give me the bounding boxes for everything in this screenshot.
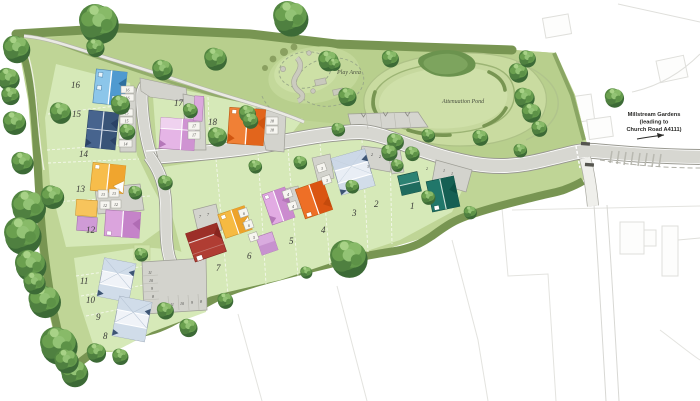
svg-text:8: 8 <box>152 294 154 299</box>
svg-text:2: 2 <box>374 199 379 209</box>
svg-text:13: 13 <box>112 191 116 196</box>
svg-text:1: 1 <box>451 171 453 176</box>
svg-text:Play Area: Play Area <box>336 70 361 76</box>
svg-text:3: 3 <box>367 164 369 169</box>
svg-text:17: 17 <box>174 98 184 108</box>
svg-text:14: 14 <box>124 142 128 147</box>
svg-text:Attenuation Pond: Attenuation Pond <box>441 99 485 105</box>
svg-text:3: 3 <box>321 166 323 171</box>
svg-text:9: 9 <box>191 300 193 305</box>
svg-text:9: 9 <box>151 286 153 291</box>
svg-text:18: 18 <box>270 128 274 133</box>
svg-text:2: 2 <box>379 154 381 159</box>
svg-text:13: 13 <box>76 184 86 194</box>
svg-text:2: 2 <box>371 152 373 157</box>
svg-text:15: 15 <box>125 119 129 124</box>
svg-text:6: 6 <box>248 223 250 228</box>
svg-text:10: 10 <box>149 278 153 283</box>
svg-text:3: 3 <box>351 208 357 218</box>
svg-text:9: 9 <box>96 312 101 322</box>
svg-text:4: 4 <box>287 192 289 197</box>
svg-text:Church Road A4111): Church Road A4111) <box>626 127 681 133</box>
svg-text:12: 12 <box>114 202 118 207</box>
svg-text:10: 10 <box>86 295 96 305</box>
svg-text:5: 5 <box>253 235 255 240</box>
svg-text:14: 14 <box>79 149 89 159</box>
svg-text:16: 16 <box>126 88 130 93</box>
svg-text:11: 11 <box>148 270 152 275</box>
svg-text:4: 4 <box>321 225 326 235</box>
svg-text:7: 7 <box>216 263 221 273</box>
svg-text:(leading to: (leading to <box>640 120 669 126</box>
svg-text:8: 8 <box>200 299 202 304</box>
svg-text:3: 3 <box>326 178 328 183</box>
svg-text:13: 13 <box>101 192 105 197</box>
svg-text:10: 10 <box>180 301 184 306</box>
svg-text:6: 6 <box>243 211 245 216</box>
svg-text:12: 12 <box>103 203 107 208</box>
svg-text:1: 1 <box>410 201 415 211</box>
svg-text:15: 15 <box>72 109 82 119</box>
svg-text:4: 4 <box>292 204 294 209</box>
svg-text:5: 5 <box>289 236 294 246</box>
svg-text:Millstream Gardens: Millstream Gardens <box>628 112 681 118</box>
svg-text:8: 8 <box>103 331 108 341</box>
svg-text:11: 11 <box>80 276 88 286</box>
svg-text:18: 18 <box>270 119 274 124</box>
svg-text:2: 2 <box>426 166 428 171</box>
svg-text:12: 12 <box>86 225 96 235</box>
svg-text:16: 16 <box>71 80 81 90</box>
svg-text:18: 18 <box>208 117 218 127</box>
svg-text:1: 1 <box>443 168 445 173</box>
svg-text:6: 6 <box>247 251 252 261</box>
